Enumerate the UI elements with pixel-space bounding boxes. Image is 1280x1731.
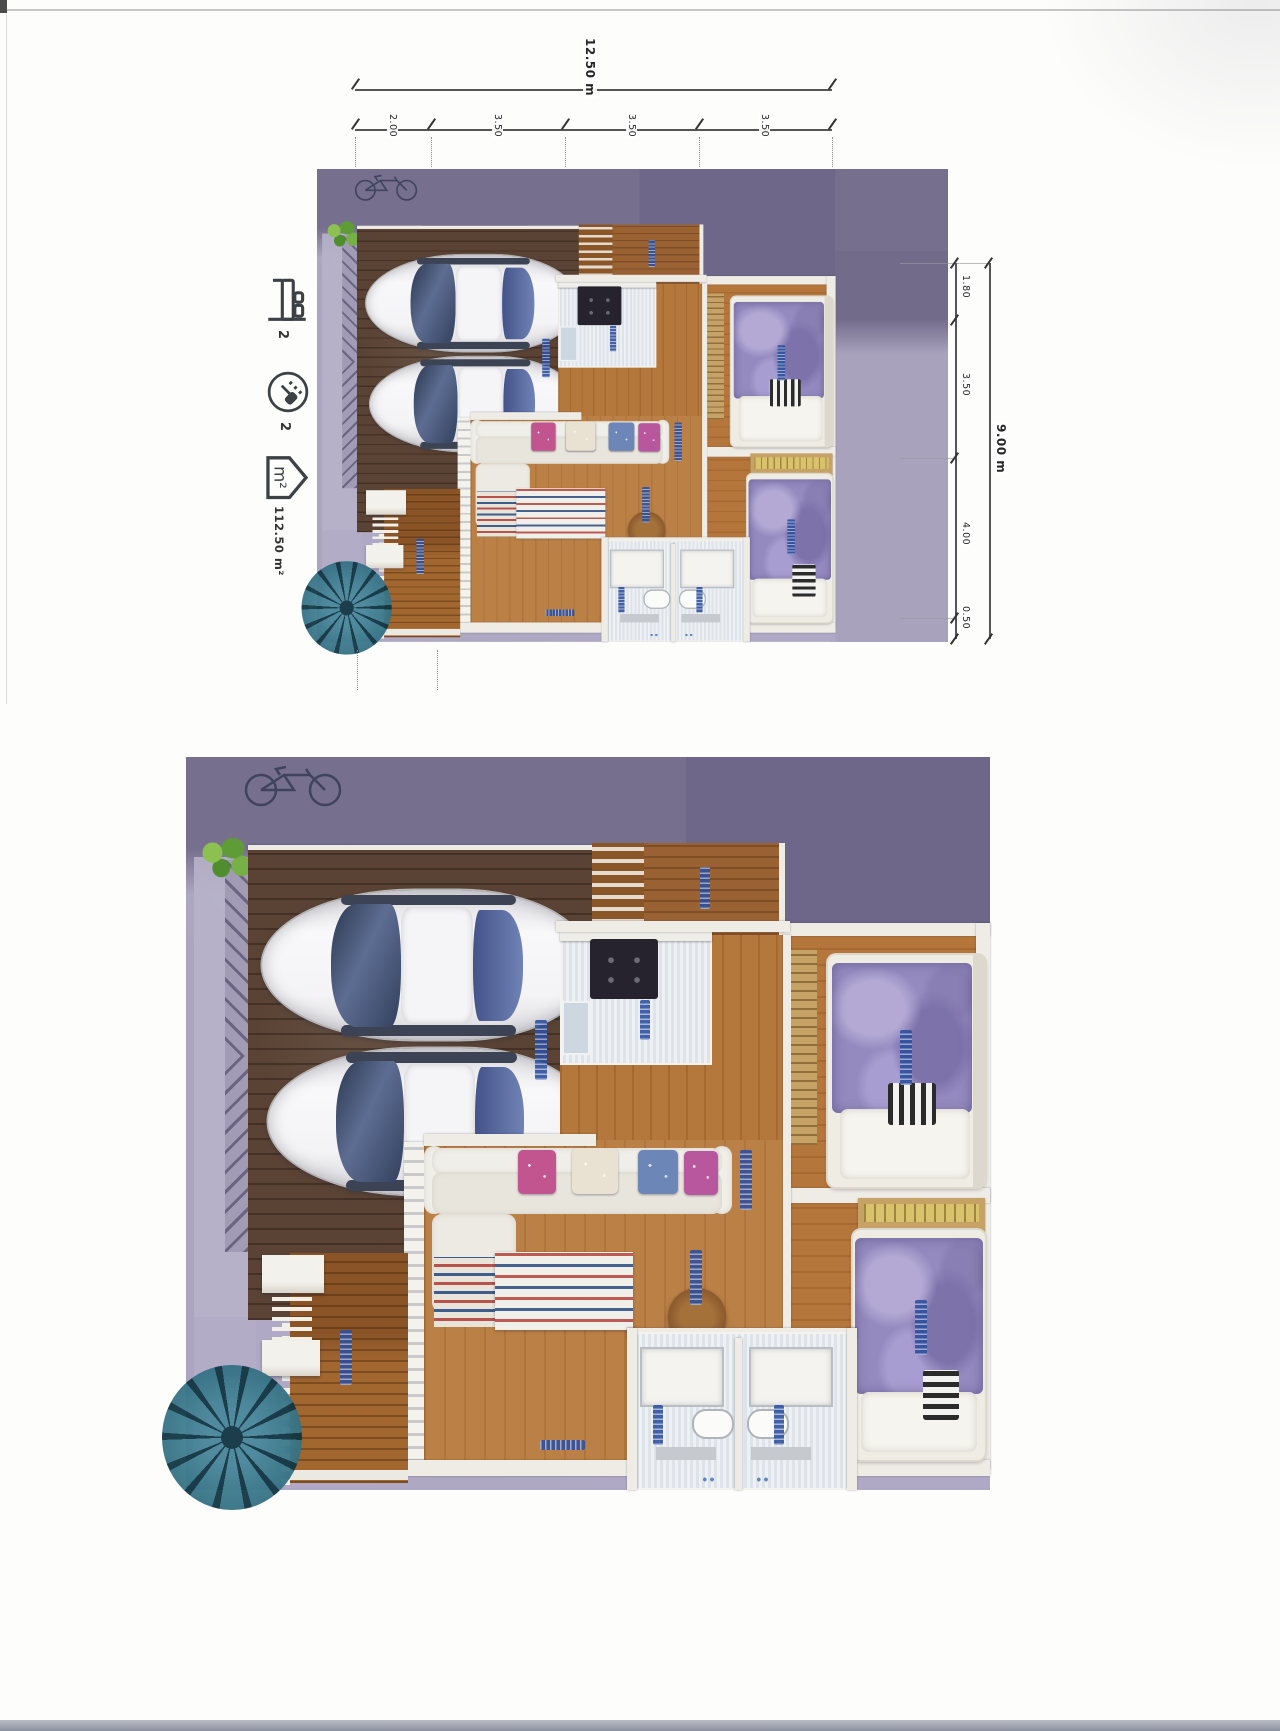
yard-ground (830, 169, 948, 642)
striped-pillow (888, 1083, 936, 1125)
striped-pillow (923, 1370, 959, 1420)
faucet-marks (683, 632, 693, 638)
room-label-mark (642, 487, 650, 522)
floor-plan (186, 757, 990, 1490)
palm-tree (302, 561, 392, 655)
extension-line (832, 137, 833, 167)
wall (424, 1134, 596, 1146)
scan-edge-line (6, 14, 7, 704)
extension-line (699, 137, 700, 167)
room-label-mark (340, 1330, 352, 1385)
room-label-mark (545, 610, 574, 616)
svg-text:m²: m² (271, 466, 290, 489)
room-label-mark (696, 587, 702, 613)
striped-rug (495, 1252, 633, 1330)
room-label-mark (700, 867, 710, 909)
headboard (973, 955, 985, 1187)
dimension-height-total-label: 9.00 m (994, 422, 1008, 475)
extension-line (437, 650, 438, 690)
car-windshield (336, 1061, 404, 1182)
room-label-mark (610, 326, 616, 352)
stove (590, 939, 658, 999)
floor-plan (317, 169, 836, 642)
extension-line (357, 650, 358, 690)
bicycle (351, 173, 423, 203)
room-label-mark (640, 1000, 650, 1040)
bathroom-vanity (680, 550, 734, 589)
bathroom-wall (847, 1328, 857, 1490)
car-rear-window (502, 267, 534, 339)
room-label-mark (416, 539, 424, 574)
sofa-cushion (531, 422, 556, 450)
dimension-segment-label: 4.00 (960, 521, 971, 546)
extension-line (565, 137, 566, 167)
faucet-marks (649, 632, 659, 638)
faucet-marks (700, 1475, 716, 1484)
scan-speck (0, 0, 7, 13)
room-label-mark (778, 345, 786, 380)
sofa-cushion (638, 1150, 678, 1194)
extension-line (900, 263, 989, 264)
extension-line (900, 458, 955, 459)
room-label-mark (900, 1030, 912, 1085)
sofa-cushion (566, 421, 596, 451)
car-side-window (417, 342, 530, 349)
planter-box (366, 490, 406, 515)
kitchen-sink (562, 1001, 590, 1055)
room-label-mark (542, 339, 550, 378)
dimension-segment-label: 3.50 (960, 372, 971, 397)
dimension-tick (950, 633, 959, 645)
car-roof (455, 265, 502, 340)
sofa-cushion (518, 1150, 556, 1194)
deck-railing (384, 629, 460, 635)
palm-tree (162, 1365, 302, 1510)
bathroom-vanity (749, 1347, 833, 1407)
extension-line (900, 618, 955, 619)
bath-mat (656, 1447, 716, 1460)
toilet (643, 590, 670, 609)
scan-edge-band (0, 1720, 1280, 1731)
wall (702, 276, 836, 284)
dimension-segment-label: 3.50 (492, 113, 503, 138)
bathroom-divider-wall (671, 544, 676, 642)
room-label-mark (535, 1020, 547, 1080)
room-label-mark (618, 587, 624, 613)
deck-steps (272, 1295, 312, 1341)
car-windshield (331, 904, 400, 1027)
dimension-line-height-total (989, 263, 991, 639)
room-label-mark (915, 1300, 927, 1355)
car (262, 890, 592, 1040)
wall (556, 275, 707, 282)
headboard (825, 297, 833, 447)
wall (556, 921, 790, 932)
bathroom-vanity (610, 550, 664, 589)
striped-pillow (792, 564, 815, 596)
bathroom-wall (627, 1328, 637, 1490)
scan-shadow (1040, 0, 1280, 170)
bedroom-count: 2 (275, 330, 290, 340)
dimension-tick (828, 78, 837, 90)
floor-plan-large (186, 757, 990, 1490)
car (366, 255, 579, 352)
dimension-tick (984, 633, 993, 645)
bath-mat (751, 1447, 811, 1460)
room-label-mark (774, 1405, 784, 1445)
dimension-segment-label: 1.80 (960, 274, 971, 299)
car-windshield (411, 263, 456, 342)
planter-box (366, 545, 403, 568)
area-value: 112.50 m² (272, 506, 286, 576)
sofa-cushion (684, 1151, 718, 1195)
deck-railing (290, 1470, 408, 1480)
bathroom-vanity (640, 1347, 724, 1407)
room-label-mark (653, 1405, 663, 1445)
extension-line (355, 137, 356, 167)
room-label-mark (740, 1150, 752, 1210)
room-label-mark (540, 1440, 585, 1450)
bath-mat (681, 614, 720, 622)
bicycle (238, 763, 350, 809)
toilet (692, 1409, 734, 1439)
bath-mat (620, 614, 659, 622)
bathroom-divider-wall (735, 1338, 742, 1490)
car-roof (401, 907, 474, 1024)
dimension-segment-label: 3.50 (626, 113, 637, 138)
planter-box (262, 1340, 320, 1376)
dimension-tick (828, 118, 837, 130)
bathroom-count: 2 (277, 422, 292, 432)
room-label-mark (787, 519, 795, 554)
bed-pillows (752, 579, 827, 618)
sofa-cushion (638, 423, 660, 451)
bed-icon (264, 274, 310, 324)
wardrobe (791, 950, 817, 1145)
bed-pillows (861, 1392, 977, 1452)
room-label-mark (674, 422, 682, 461)
scanned-page: 12.50 m 2.00 3.50 3.50 3.50 1.80 3.50 4.… (0, 0, 1280, 1731)
floor-plan-small (317, 169, 836, 642)
kitchen-sink (560, 326, 578, 361)
room-label-mark (649, 240, 655, 267)
car-windshield (414, 365, 458, 443)
shower-icon (266, 370, 310, 414)
bathroom-wall (743, 537, 749, 641)
car-side-window (341, 1025, 516, 1036)
wall (783, 923, 990, 936)
stove (578, 286, 622, 325)
dresser (750, 453, 832, 475)
deck-steps (372, 516, 398, 546)
sofa-cushion (572, 1148, 618, 1194)
dimension-segment-label: 3.50 (759, 113, 770, 138)
striped-rug (516, 488, 605, 538)
dimension-segment-label: 2.00 (387, 113, 398, 138)
dimension-segment-label: 0.50 (960, 605, 971, 630)
faucet-marks (754, 1475, 770, 1484)
house-area-icon: m² (263, 449, 311, 503)
dresser (858, 1198, 985, 1232)
planter-box (262, 1255, 324, 1293)
bathroom-wall (601, 537, 607, 641)
wall (471, 412, 582, 420)
car-rear-window (473, 910, 523, 1021)
room-label-mark (690, 1250, 702, 1305)
striped-pillow (770, 379, 801, 406)
extension-line (431, 137, 432, 167)
dimension-width-total-label: 12.50 m (583, 36, 597, 98)
sofa-cushion (609, 422, 635, 450)
wardrobe (707, 293, 724, 419)
